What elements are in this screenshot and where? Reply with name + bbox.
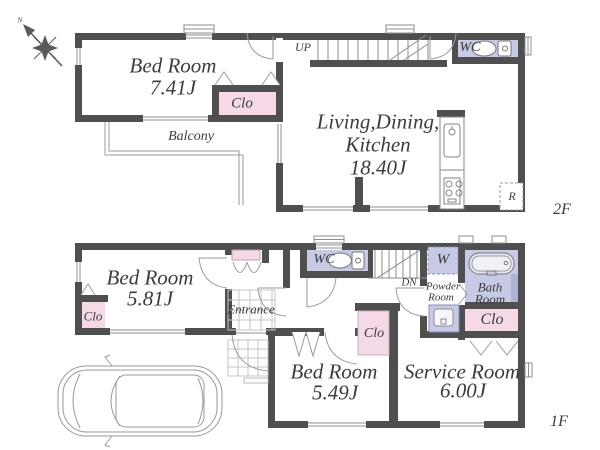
- kitchen-sink-icon: [444, 124, 460, 157]
- washer-label: W: [437, 253, 450, 268]
- floor1-label: 1F: [550, 414, 568, 430]
- service-room-area: 6.00J: [440, 381, 486, 402]
- entrance-area: [228, 250, 275, 383]
- powder-room-line2: Room: [428, 293, 454, 304]
- car-icon: [58, 355, 222, 447]
- bedroom-2f-name: Bed Room: [130, 56, 217, 77]
- floor2-label: 2F: [553, 202, 571, 218]
- closet-b-label: Clo: [364, 327, 384, 341]
- bathtub-icon: [469, 253, 514, 275]
- bedroom-a-name: Bed Room: [107, 268, 194, 289]
- floorplan: N Bed Room 7.41J Clo Balcony UP Living,D…: [0, 0, 600, 450]
- stairs-up-label: UP: [295, 41, 311, 53]
- kitchen-counter: [440, 117, 464, 209]
- powder-room-sink: [429, 305, 459, 332]
- closet-2f-label: Clo: [231, 97, 253, 112]
- stove-icon: [444, 178, 462, 204]
- compass-icon: [23, 24, 62, 66]
- wc-1f-label: WC: [314, 253, 335, 267]
- bedroom-a-area: 5.81J: [127, 289, 173, 310]
- refrigerator-label: R: [508, 190, 515, 202]
- ldk-name-line1: Living,Dining,: [317, 112, 440, 133]
- ldk-name-line2: Kitchen: [345, 135, 410, 156]
- shower-panel: [511, 274, 518, 302]
- closet-a-label: Clo: [84, 310, 103, 323]
- bath-room-line2: Room: [475, 293, 505, 306]
- stairs-down: [368, 250, 427, 278]
- bedroom-b-area: 5.49J: [312, 383, 358, 404]
- bedroom-2f-area: 7.41J: [150, 78, 196, 99]
- entrance-label: Entrance: [227, 303, 275, 316]
- bedroom-b-name: Bed Room: [291, 362, 378, 383]
- wc-2f-label: WC: [460, 41, 481, 55]
- ldk-area: 18.40J: [350, 158, 407, 179]
- compass-north-label: N: [18, 18, 23, 25]
- closet-bath-label: Clo: [480, 312, 503, 328]
- stairs-down-label: DN: [401, 278, 416, 289]
- balcony-label: Balcony: [168, 130, 214, 144]
